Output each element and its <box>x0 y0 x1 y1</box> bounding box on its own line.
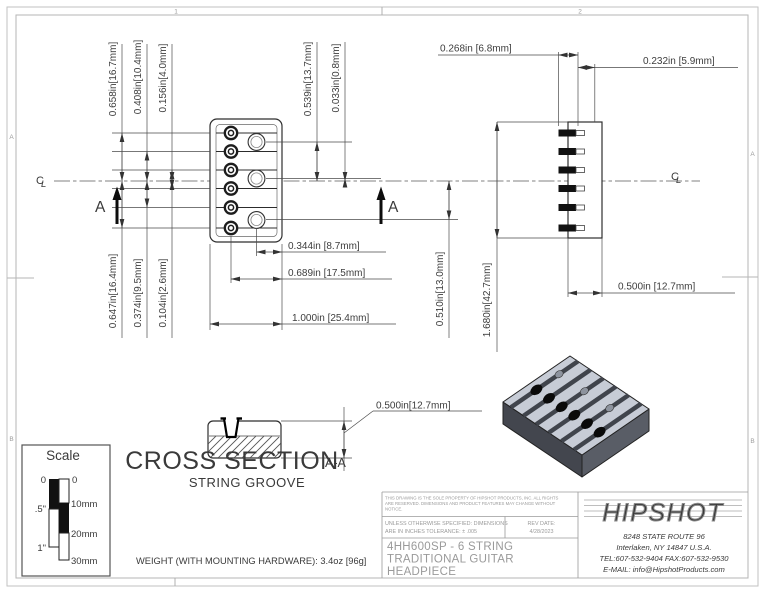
scale-tick-in-0: 0 <box>41 475 46 486</box>
scale-bar-inch-white <box>49 509 59 547</box>
part-title-line1: 4HH600SP - 6 STRING <box>387 541 513 553</box>
dim-string5: 0.374in[9.5mm] <box>133 258 144 327</box>
dim-hole-screw: 0.689in [17.5mm] <box>288 268 365 279</box>
dim-width: 1.000in [25.4mm] <box>292 313 369 324</box>
scale-tick-in-half: .5" <box>35 504 46 515</box>
zone-label-top-1: 1 <box>174 9 178 16</box>
part-title-line3: HEADPIECE <box>387 566 456 578</box>
dim-string1: 0.658in[16.7mm] <box>108 42 119 117</box>
section-marker-right: A <box>388 199 399 216</box>
part-title-line2: TRADITIONAL GUITAR <box>387 554 514 566</box>
dim-length: 1.680in[42.7mm] <box>482 263 493 338</box>
dim-pin-tip: 0.232in [5.9mm] <box>643 56 715 67</box>
scale-tick-mm-0: 0 <box>72 475 77 486</box>
front-view <box>112 119 458 242</box>
company-address-street: 8248 STATE ROUTE 96 <box>623 532 705 541</box>
front-view-dimensions: 0.658in[16.7mm] 0.408in[10.4mm] 0.156in[… <box>108 40 568 352</box>
dim-string6: 0.647in[16.4mm] <box>108 254 119 329</box>
property-notice-line1: THIS DRAWING IS THE SOLE PROPERTY OF HIP… <box>385 496 559 501</box>
scale-tick-mm-10: 10mm <box>71 499 97 510</box>
centerline-symbol-left-l: L <box>41 179 46 190</box>
property-notice-line3: NOTICE. <box>385 507 402 512</box>
scale-bar-mm-black <box>59 503 69 533</box>
cross-section-view: 0.500in[12.7mm] CROSS SECTION A-A STRING… <box>125 401 482 491</box>
rev-date-label: REV DATE: <box>527 521 555 527</box>
hipshot-logo: HIPSHOT <box>602 499 724 527</box>
weight-note: WEIGHT (WITH MOUNTING HARDWARE): 3.4oz [… <box>136 556 366 566</box>
centerline-symbol-right-l: L <box>676 175 681 186</box>
dim-hole-edge: 0.344in [8.7mm] <box>288 241 360 252</box>
scale-widget: Scale 0 .5" 1" 0 10mm 20mm 30mm <box>22 445 110 576</box>
side-view <box>559 122 603 238</box>
dim-hole-top: 0.539in[13.7mm] <box>303 42 314 117</box>
company-address-city: Interlaken, NY 14847 U.S.A. <box>616 543 711 552</box>
scale-bar-mm-white1 <box>59 479 69 503</box>
zone-label-right-a: A <box>750 151 755 158</box>
section-marker-left: A <box>95 199 106 216</box>
dim-section-height: 0.500in[12.7mm] <box>376 401 451 412</box>
dim-depth: 0.500in [12.7mm] <box>618 282 695 293</box>
dim-hole-mid: 0.033in[0.8mm] <box>331 43 342 112</box>
zone-label-top-2: 2 <box>578 9 582 16</box>
dim-hole-bottom: 0.510in[13.0mm] <box>435 252 446 327</box>
drawing-canvas: 1 2 A B A B C L C L <box>0 0 768 594</box>
scale-tick-in-1: 1" <box>37 543 46 554</box>
mounting-holes <box>248 134 265 229</box>
scale-title: Scale <box>46 448 80 463</box>
scale-tick-mm-30: 30mm <box>71 556 97 567</box>
company-phone: TEL:607-532-9404 FAX:607-532-9530 <box>599 554 729 563</box>
string-groove-profile <box>224 419 239 438</box>
isometric-view <box>503 356 649 477</box>
cross-section-ref: A-A <box>325 456 347 470</box>
tolerance-note-line1: UNLESS OTHERWISE SPECIFIED: DIMENSIONS <box>385 521 508 527</box>
cross-section-subtitle: STRING GROOVE <box>189 475 305 490</box>
scale-bar-inch-black <box>49 479 59 509</box>
property-notice-line2: ARE RESERVED. DIMENSIONS AND PRODUCT FEA… <box>385 501 556 506</box>
cross-section-title: CROSS SECTION <box>125 447 338 475</box>
company-email: E-MAIL: info@HipshotProducts.com <box>603 565 725 574</box>
zone-label-left-a: A <box>9 134 14 141</box>
company-block: HIPSHOT 8248 STATE ROUTE 96 Interlaken, … <box>584 499 742 574</box>
dim-string3: 0.156in[4.0mm] <box>158 43 169 112</box>
scale-bar-mm-white2 <box>59 533 69 560</box>
dim-string2: 0.408in[10.4mm] <box>133 40 144 115</box>
scale-tick-mm-20: 20mm <box>71 529 97 540</box>
zone-label-left-b: B <box>9 436 13 443</box>
rev-date-value: 4/28/2023 <box>530 529 554 535</box>
tolerance-note-line2: ARE IN INCHES TOLERANCE: ± .005 <box>385 529 477 535</box>
dim-string4: 0.104in[2.6mm] <box>158 258 169 327</box>
dim-pin-inset: 0.268in [6.8mm] <box>440 44 512 55</box>
zone-label-right-b: B <box>750 438 754 445</box>
drawing-sheet: 1 2 A B A B C L C L <box>0 0 768 594</box>
